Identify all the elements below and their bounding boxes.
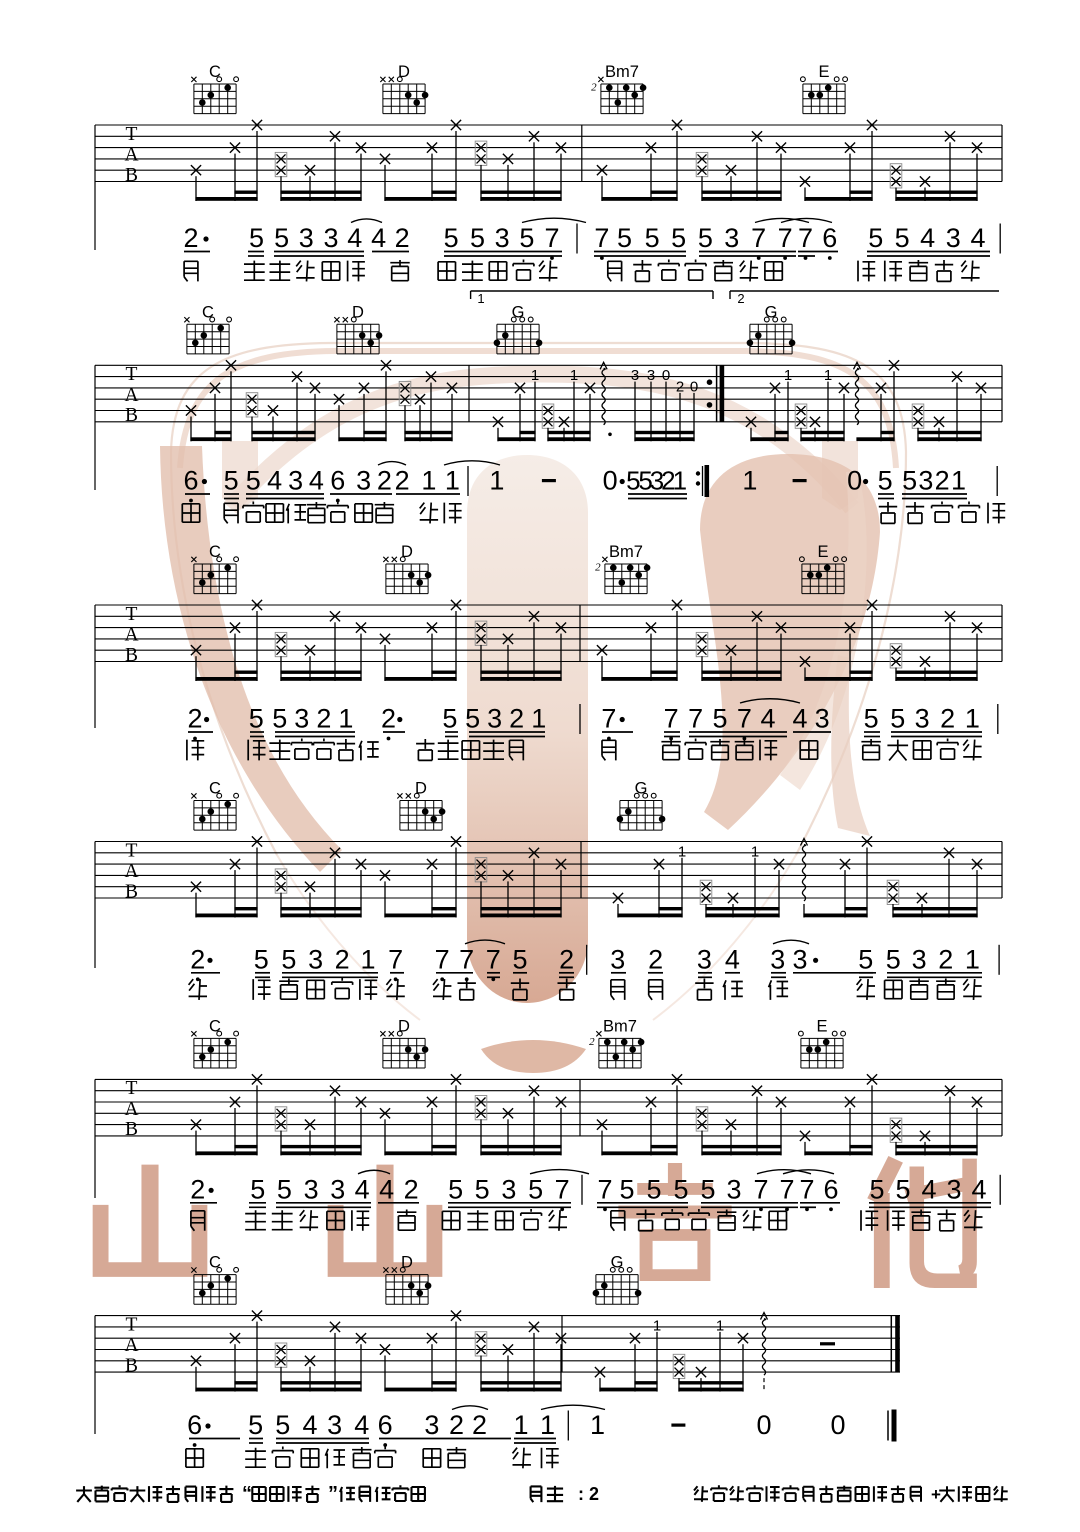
svg-text:5: 5	[712, 704, 727, 734]
svg-text:5: 5	[902, 466, 917, 496]
svg-text:1: 1	[489, 466, 504, 496]
svg-text:3: 3	[724, 223, 739, 253]
svg-text:1: 1	[590, 1410, 605, 1440]
svg-text:5: 5	[698, 223, 713, 253]
svg-text:5: 5	[512, 944, 527, 974]
svg-text:2: 2	[648, 944, 663, 974]
svg-text:4: 4	[267, 466, 282, 496]
svg-text:4: 4	[725, 944, 740, 974]
svg-text:3: 3	[299, 223, 314, 253]
svg-text:2: 2	[938, 944, 953, 974]
svg-text:5: 5	[645, 223, 660, 253]
svg-text:4: 4	[921, 1174, 936, 1204]
svg-text:G: G	[611, 1254, 624, 1272]
svg-text:3: 3	[770, 944, 785, 974]
svg-text:2: 2	[589, 1036, 595, 1048]
svg-text:T: T	[126, 124, 138, 145]
svg-text:1: 1	[784, 367, 792, 384]
svg-text:1: 1	[513, 1410, 528, 1440]
svg-text:A: A	[124, 625, 138, 646]
svg-text:2: 2	[316, 704, 331, 734]
svg-text:7: 7	[753, 1174, 768, 1204]
svg-text:6: 6	[823, 1174, 838, 1204]
svg-text:3: 3	[697, 944, 712, 974]
svg-text:3: 3	[726, 1174, 741, 1204]
svg-text:3: 3	[915, 704, 930, 734]
svg-text:D: D	[352, 303, 364, 321]
svg-text:6: 6	[378, 1410, 393, 1440]
svg-text:7: 7	[688, 704, 703, 734]
svg-text:1: 1	[421, 466, 436, 496]
svg-text:3: 3	[487, 704, 502, 734]
svg-text:4: 4	[971, 1174, 986, 1204]
svg-text:1: 1	[445, 466, 460, 496]
svg-text:5: 5	[673, 1174, 688, 1204]
svg-text:1: 1	[965, 704, 980, 734]
svg-text:7: 7	[597, 1174, 612, 1204]
svg-text:5: 5	[890, 704, 905, 734]
svg-text:1: 1	[653, 1317, 661, 1334]
svg-text:7: 7	[737, 704, 752, 734]
svg-text:2: 2	[559, 944, 574, 974]
svg-text:D: D	[398, 1017, 410, 1035]
svg-text:5: 5	[444, 223, 459, 253]
svg-text:”: ”	[328, 1483, 338, 1505]
svg-text:5: 5	[519, 223, 534, 253]
svg-text:1: 1	[965, 944, 980, 974]
svg-text:5: 5	[465, 704, 480, 734]
svg-text:D: D	[401, 1254, 413, 1272]
svg-text:3: 3	[288, 466, 303, 496]
svg-text:G: G	[765, 303, 778, 321]
svg-text:C: C	[202, 303, 214, 321]
svg-text:B: B	[125, 405, 138, 426]
svg-text:E: E	[818, 63, 829, 81]
svg-text:B: B	[125, 645, 138, 666]
svg-text:7: 7	[798, 223, 813, 253]
svg-text:D: D	[415, 780, 427, 798]
svg-text:2: 2	[509, 704, 524, 734]
svg-text:3: 3	[304, 1174, 319, 1204]
svg-text:5: 5	[864, 704, 879, 734]
svg-text:6: 6	[187, 1410, 202, 1440]
svg-text:5: 5	[246, 466, 261, 496]
svg-text:T: T	[126, 840, 138, 861]
svg-text:5: 5	[895, 1174, 910, 1204]
svg-text:7: 7	[601, 704, 616, 734]
svg-text:4: 4	[760, 704, 775, 734]
svg-text:6: 6	[183, 466, 198, 496]
svg-text:+: +	[931, 1485, 941, 1504]
svg-text:4: 4	[371, 223, 386, 253]
svg-text:0: 0	[603, 466, 618, 496]
svg-text:Bm7: Bm7	[609, 543, 643, 561]
svg-text:5: 5	[700, 1174, 715, 1204]
svg-text:7: 7	[486, 944, 501, 974]
svg-text:1: 1	[477, 291, 484, 306]
svg-text:1: 1	[570, 367, 578, 384]
svg-text:1: 1	[531, 367, 539, 384]
svg-text:0: 0	[662, 367, 670, 384]
svg-text:5: 5	[448, 1174, 463, 1204]
svg-text:5: 5	[249, 704, 264, 734]
svg-text:1: 1	[540, 1410, 555, 1440]
svg-text:5: 5	[868, 223, 883, 253]
svg-text:7: 7	[778, 223, 793, 253]
svg-text:“: “	[242, 1483, 252, 1505]
svg-text:3: 3	[294, 704, 309, 734]
svg-text:4: 4	[920, 223, 935, 253]
svg-text:2: 2	[377, 466, 392, 496]
svg-text:G: G	[635, 780, 648, 798]
svg-text:4: 4	[355, 1174, 370, 1204]
svg-text:B: B	[125, 165, 138, 186]
svg-text:2: 2	[190, 1174, 205, 1204]
svg-text:T: T	[126, 1078, 138, 1099]
svg-text:2: 2	[190, 944, 205, 974]
svg-text:0: 0	[690, 378, 698, 395]
svg-text:3: 3	[946, 1174, 961, 1204]
svg-text:A: A	[124, 861, 138, 882]
svg-text:Bm7: Bm7	[605, 63, 639, 81]
svg-text:3: 3	[501, 1174, 516, 1204]
svg-text:3: 3	[792, 944, 807, 974]
svg-text:5: 5	[869, 1174, 884, 1204]
svg-text:5: 5	[281, 944, 296, 974]
svg-text:3: 3	[308, 944, 323, 974]
svg-text:1: 1	[360, 944, 375, 974]
svg-text:5: 5	[254, 944, 269, 974]
svg-text:1: 1	[673, 466, 687, 496]
svg-text:2: 2	[737, 291, 744, 306]
svg-text:5: 5	[442, 704, 457, 734]
svg-text:A: A	[124, 1335, 138, 1356]
svg-text:3: 3	[495, 223, 510, 253]
svg-text:5: 5	[274, 223, 289, 253]
svg-text:2: 2	[591, 82, 597, 94]
svg-text:D: D	[401, 543, 413, 561]
svg-text:1: 1	[824, 367, 832, 384]
svg-text:5: 5	[475, 1174, 490, 1204]
svg-text:D: D	[398, 63, 410, 81]
svg-text:1: 1	[742, 466, 757, 496]
svg-text:2: 2	[183, 223, 198, 253]
svg-text:2: 2	[595, 562, 601, 574]
svg-text:2: 2	[449, 1410, 464, 1440]
svg-text:1: 1	[951, 466, 966, 496]
svg-text:2: 2	[187, 704, 202, 734]
svg-text:4: 4	[792, 704, 807, 734]
svg-text:1: 1	[716, 1317, 724, 1334]
svg-text:T: T	[126, 1314, 138, 1335]
svg-text:5: 5	[275, 1410, 290, 1440]
svg-text:3: 3	[631, 367, 639, 384]
svg-text:B: B	[125, 1355, 138, 1376]
svg-text:0: 0	[756, 1410, 771, 1440]
svg-text:7: 7	[664, 704, 679, 734]
svg-text:B: B	[125, 881, 138, 902]
svg-text:3: 3	[330, 1174, 345, 1204]
svg-text:1: 1	[678, 843, 686, 860]
svg-text:7: 7	[555, 1174, 570, 1204]
svg-text:A: A	[124, 145, 138, 166]
svg-text:B: B	[125, 1119, 138, 1140]
svg-text:0: 0	[830, 1410, 845, 1440]
svg-text:4: 4	[302, 1410, 317, 1440]
svg-text:3: 3	[323, 223, 338, 253]
svg-text:C: C	[209, 780, 221, 798]
svg-text:3: 3	[327, 1410, 342, 1440]
svg-text:3: 3	[912, 944, 927, 974]
svg-text:6: 6	[330, 466, 345, 496]
svg-text:7: 7	[751, 223, 766, 253]
svg-text:7: 7	[459, 944, 474, 974]
svg-text:G: G	[512, 303, 525, 321]
svg-text:5: 5	[878, 466, 893, 496]
svg-text:5: 5	[249, 223, 264, 253]
svg-text:0: 0	[847, 466, 862, 496]
svg-text:A: A	[124, 385, 138, 406]
svg-text:2: 2	[335, 944, 350, 974]
svg-text:7: 7	[544, 223, 559, 253]
svg-text:E: E	[817, 543, 828, 561]
svg-text:5: 5	[886, 944, 901, 974]
svg-text:A: A	[124, 1099, 138, 1120]
svg-text:2: 2	[472, 1410, 487, 1440]
svg-text:7: 7	[388, 944, 403, 974]
svg-text:4: 4	[379, 1174, 394, 1204]
svg-text:2: 2	[395, 223, 410, 253]
svg-text:3: 3	[946, 223, 961, 253]
svg-text:5: 5	[250, 1174, 265, 1204]
svg-text:7: 7	[594, 223, 609, 253]
svg-text:5: 5	[646, 1174, 661, 1204]
svg-text:5: 5	[528, 1174, 543, 1204]
svg-text:5: 5	[248, 1410, 263, 1440]
svg-text:3: 3	[356, 466, 371, 496]
svg-text:3: 3	[610, 944, 625, 974]
svg-text:5: 5	[619, 1174, 634, 1204]
svg-text:4: 4	[347, 223, 362, 253]
svg-text:5: 5	[224, 466, 239, 496]
svg-text:7: 7	[779, 1174, 794, 1204]
svg-text:3: 3	[918, 466, 933, 496]
svg-text:5: 5	[617, 223, 632, 253]
svg-text:1: 1	[338, 704, 353, 734]
svg-text:5: 5	[858, 944, 873, 974]
svg-text:2: 2	[940, 704, 955, 734]
svg-text:C: C	[209, 1254, 221, 1272]
svg-text:E: E	[816, 1017, 827, 1035]
svg-text:3: 3	[647, 367, 655, 384]
svg-text:3: 3	[815, 704, 830, 734]
svg-text:C: C	[209, 1017, 221, 1035]
svg-text:2: 2	[935, 466, 950, 496]
svg-text:5: 5	[470, 223, 485, 253]
svg-text:3: 3	[424, 1410, 439, 1440]
svg-text:5: 5	[277, 1174, 292, 1204]
svg-text:: 2: : 2	[578, 1484, 599, 1504]
svg-text:C: C	[209, 543, 221, 561]
svg-text:2: 2	[395, 466, 410, 496]
svg-text:5: 5	[895, 223, 910, 253]
svg-text:1: 1	[531, 704, 546, 734]
svg-text:T: T	[126, 364, 138, 385]
svg-text:4: 4	[970, 223, 985, 253]
svg-text:T: T	[126, 604, 138, 625]
svg-text:4: 4	[309, 466, 324, 496]
svg-text:2: 2	[676, 378, 684, 395]
svg-text:7: 7	[435, 944, 450, 974]
svg-text:1: 1	[751, 843, 759, 860]
svg-text:5: 5	[671, 223, 686, 253]
svg-text:2: 2	[381, 704, 396, 734]
svg-text:7: 7	[799, 1174, 814, 1204]
svg-text:4: 4	[354, 1410, 369, 1440]
svg-text:6: 6	[822, 223, 837, 253]
svg-text:Bm7: Bm7	[603, 1017, 637, 1035]
svg-text:5: 5	[272, 704, 287, 734]
svg-text:2: 2	[404, 1174, 419, 1204]
svg-text:C: C	[209, 63, 221, 81]
